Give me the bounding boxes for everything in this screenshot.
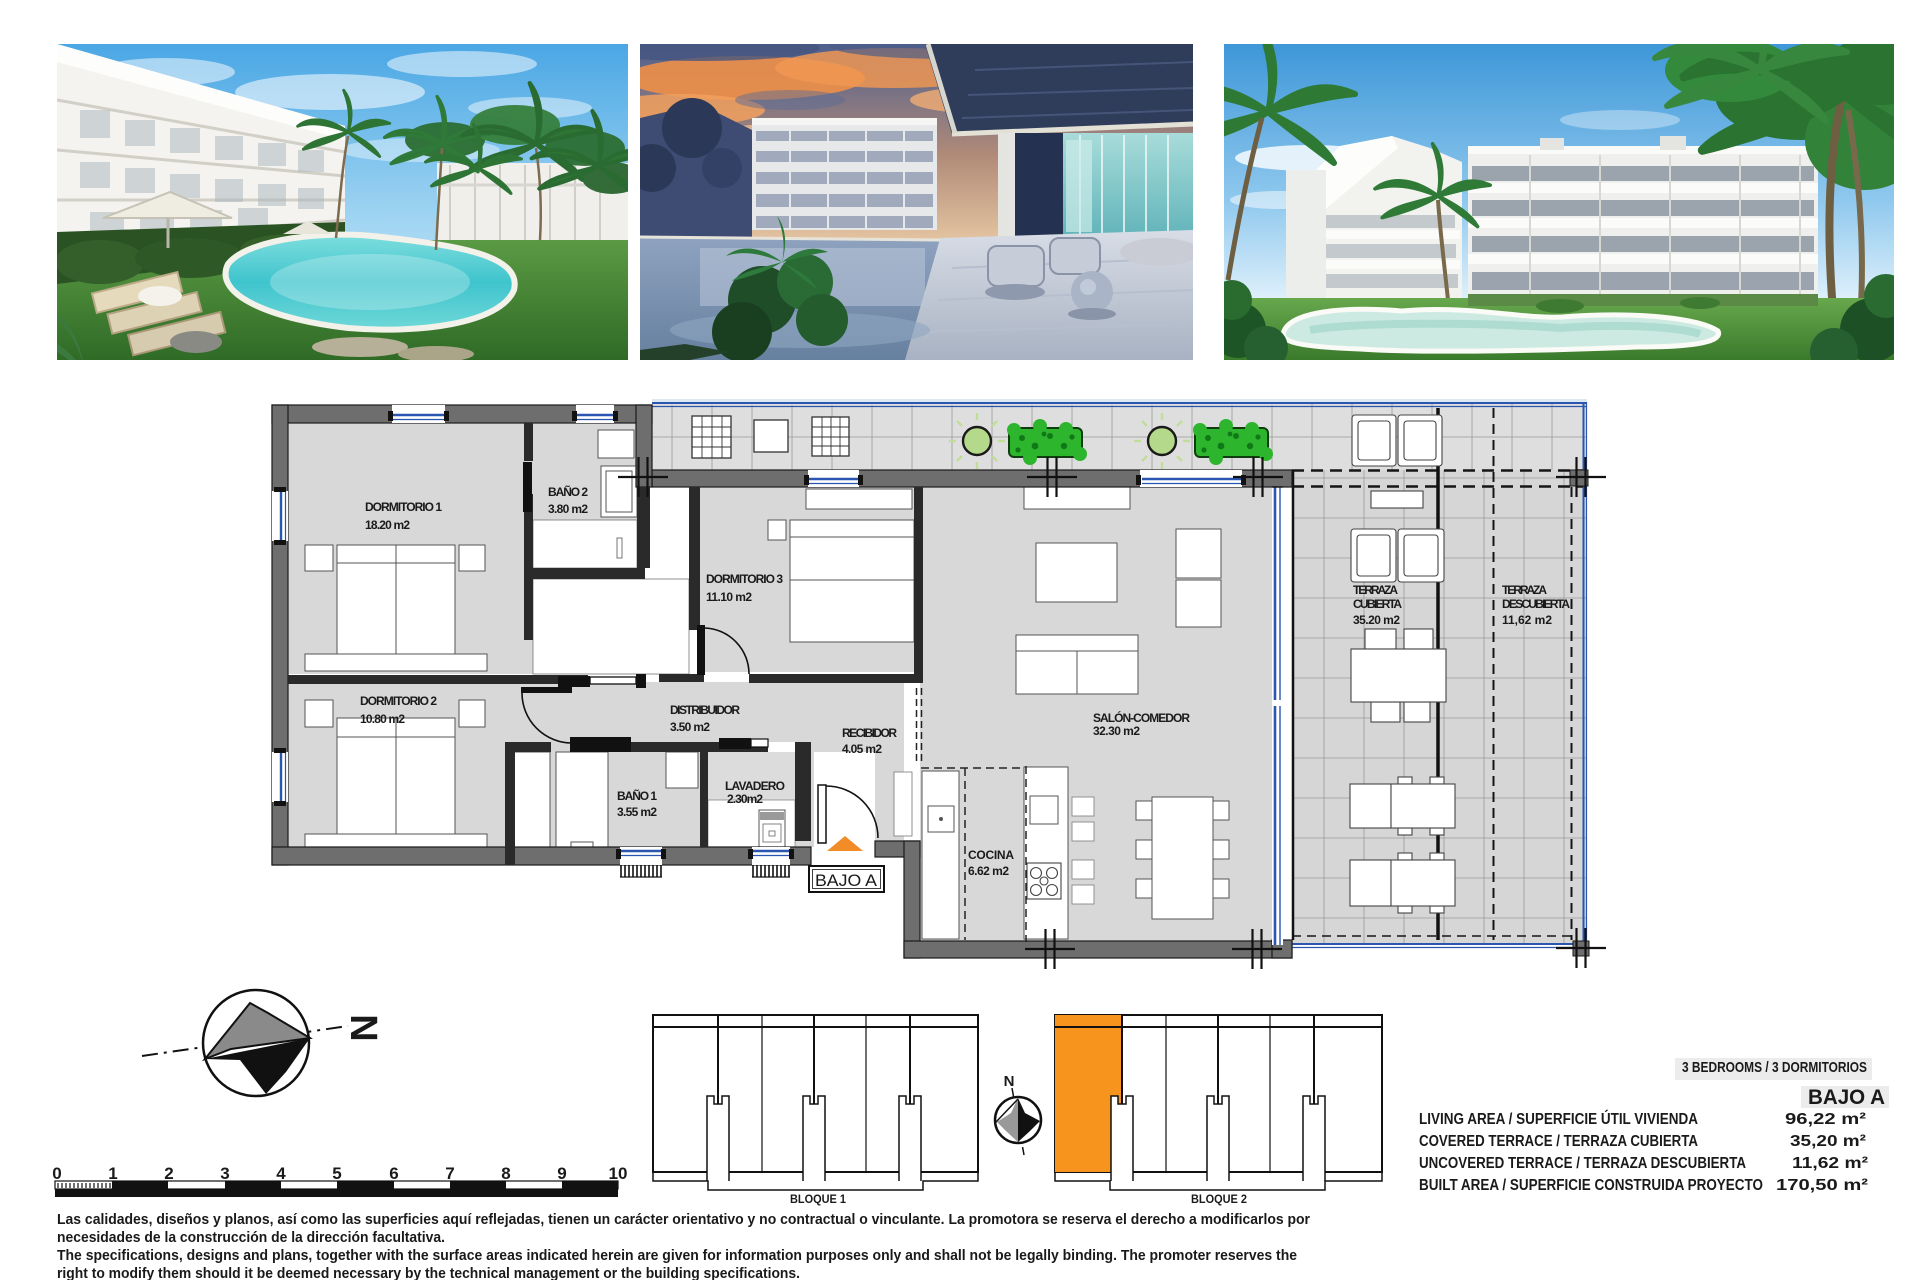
svg-text:necesidades de la construcción: necesidades de la construcción de la dir…: [57, 1229, 445, 1246]
svg-text:3 BEDROOMS / 3 DORMITORIOS: 3 BEDROOMS / 3 DORMITORIOS: [1682, 1059, 1867, 1076]
svg-text:BAJO A: BAJO A: [815, 871, 878, 890]
svg-text:11.10 m2: 11.10 m2: [706, 590, 752, 604]
svg-text:TERRAZA: TERRAZA: [1502, 583, 1547, 597]
svg-text:6: 6: [389, 1164, 398, 1183]
svg-text:35,20 m²: 35,20 m²: [1790, 1133, 1866, 1150]
svg-text:96,22 m²: 96,22 m²: [1785, 1111, 1866, 1128]
svg-text:N: N: [342, 1014, 384, 1041]
svg-text:SALÓN-COMEDOR: SALÓN-COMEDOR: [1093, 710, 1190, 725]
svg-text:0: 0: [52, 1164, 61, 1183]
svg-text:5: 5: [332, 1164, 341, 1183]
svg-text:BUILT AREA / SUPERFICIE CONSTR: BUILT AREA / SUPERFICIE CONSTRUIDA PROYE…: [1419, 1177, 1763, 1194]
svg-text:DORMITORIO 2: DORMITORIO 2: [360, 694, 437, 708]
svg-text:4.05 m2: 4.05 m2: [842, 742, 882, 756]
svg-text:BAÑO 1: BAÑO 1: [617, 788, 657, 803]
svg-text:3.55 m2: 3.55 m2: [617, 805, 657, 819]
svg-text:RECIBIDOR: RECIBIDOR: [842, 726, 897, 740]
svg-text:3.80 m2: 3.80 m2: [548, 502, 588, 516]
svg-text:right to modify them should it: right to modify them should it be deemed…: [57, 1265, 800, 1280]
svg-text:UNCOVERED TERRACE / TERRAZA DE: UNCOVERED TERRACE / TERRAZA DESCUBIERTA: [1419, 1155, 1746, 1172]
svg-text:LAVADERO: LAVADERO: [725, 779, 785, 793]
svg-text:9: 9: [557, 1164, 566, 1183]
svg-text:COVERED TERRACE / TERRAZA CUBI: COVERED TERRACE / TERRAZA CUBIERTA: [1419, 1133, 1698, 1150]
svg-text:3: 3: [220, 1164, 229, 1183]
svg-text:6.62 m2: 6.62 m2: [968, 864, 1009, 878]
svg-text:10: 10: [609, 1164, 628, 1183]
svg-text:The specifications, designs an: The specifications, designs and plans, t…: [57, 1247, 1297, 1264]
svg-text:COCINA: COCINA: [968, 848, 1014, 862]
svg-text:7: 7: [445, 1164, 454, 1183]
svg-text:N: N: [1004, 1073, 1015, 1090]
svg-text:35.20 m2: 35.20 m2: [1353, 613, 1400, 627]
svg-text:BLOQUE 2: BLOQUE 2: [1191, 1192, 1247, 1206]
svg-text:CUBIERTA: CUBIERTA: [1353, 597, 1402, 611]
svg-text:BAÑO 2: BAÑO 2: [548, 484, 588, 499]
svg-text:2.30m2: 2.30m2: [727, 792, 763, 806]
svg-text:4: 4: [276, 1164, 286, 1183]
svg-text:32.30 m2: 32.30 m2: [1093, 724, 1140, 738]
svg-text:11,62 m²: 11,62 m²: [1792, 1155, 1868, 1172]
svg-text:3.50 m2: 3.50 m2: [670, 720, 710, 734]
svg-text:DESCUBIERTA: DESCUBIERTA: [1502, 597, 1570, 611]
svg-text:18.20 m2: 18.20 m2: [365, 518, 410, 532]
svg-text:DISTRIBUIDOR: DISTRIBUIDOR: [670, 703, 740, 717]
svg-text:TERRAZA: TERRAZA: [1353, 583, 1398, 597]
svg-text:BLOQUE 1: BLOQUE 1: [790, 1192, 846, 1206]
svg-text:10.80 m2: 10.80 m2: [360, 712, 405, 726]
svg-text:BAJO A: BAJO A: [1808, 1086, 1885, 1109]
svg-text:LIVING AREA / SUPERFICIE ÚTIL: LIVING AREA / SUPERFICIE ÚTIL VIVIENDA: [1419, 1109, 1698, 1128]
svg-text:11,62 m2: 11,62 m2: [1502, 613, 1552, 627]
svg-text:2: 2: [164, 1164, 173, 1183]
svg-text:1: 1: [108, 1164, 117, 1183]
svg-text:8: 8: [501, 1164, 510, 1183]
svg-text:DORMITORIO 3: DORMITORIO 3: [706, 572, 783, 586]
svg-text:170,50 m²: 170,50 m²: [1776, 1177, 1868, 1194]
svg-text:Las calidades, diseños y plano: Las calidades, diseños y planos, así com…: [57, 1211, 1310, 1228]
svg-text:DORMITORIO 1: DORMITORIO 1: [365, 500, 442, 514]
